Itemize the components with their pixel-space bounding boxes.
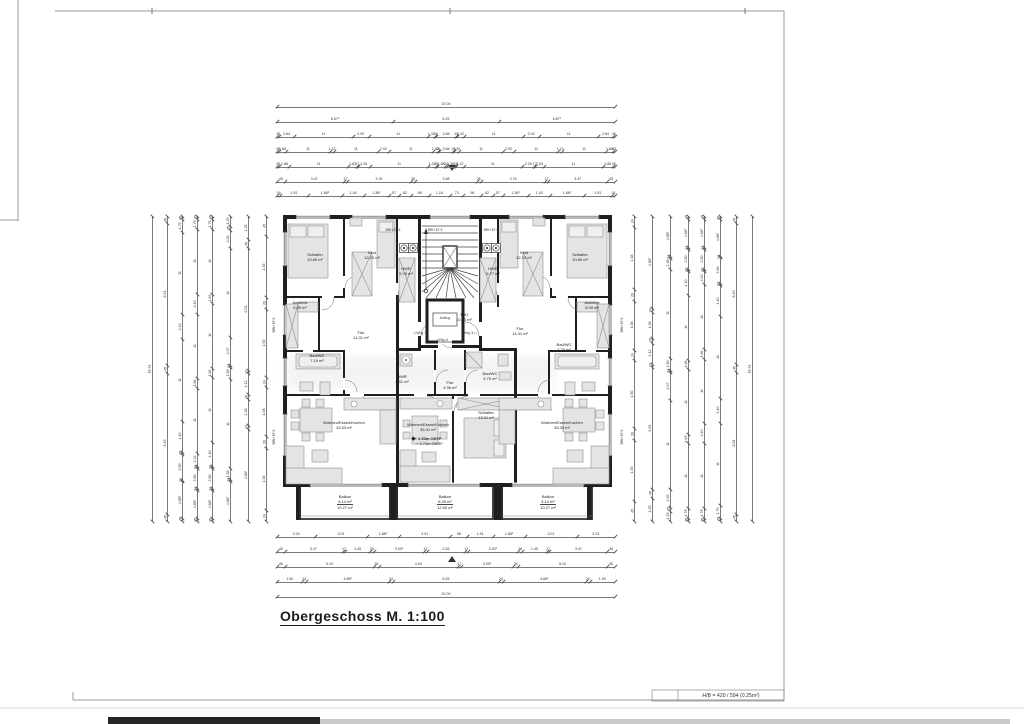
dim-chain-right-8: 241.38261.08241.50261.3545 (628, 216, 635, 521)
dim-chain-left-6: 1.25452.26113.37241.50111.38244.88⁵ (224, 216, 231, 521)
scan-edge-light (320, 719, 1010, 724)
dim-chain-top-5: 451.88111.63172.26111.32261.58241.58261.… (277, 161, 615, 168)
dim-chain-top-6: 453.47173.76263.58263.76173.4745 (277, 176, 615, 183)
dim-chain-left-4: 451.75113.40111.66112.32263.50244.88⁵45 (191, 216, 198, 521)
drawing-sheet: { "sheet": { "title": "Obergeschoss M. 1… (0, 0, 1024, 724)
dim-chain-right-3: 454.88⁵243.50264.10113.40111.7545 (714, 216, 721, 521)
dim-chain-bottom-total: 20.00 (277, 591, 615, 598)
floor-plan-drawing (0, 0, 1024, 724)
dim-chain-top-total: 20.00 (277, 101, 615, 108)
dim-chain-left-7: 1.25456.51171.12261.38244.88⁵ (242, 216, 249, 521)
elevator (427, 300, 463, 344)
dim-chain-bottom-1: 2.243.011.88⁵3.01981.511.88⁵3.012.24 (277, 531, 615, 538)
dim-chain-left-8: 451.35261.50241.08261.3824 (260, 216, 267, 521)
dim-chain-right-total: 18.31 (746, 216, 753, 521)
balconies (300, 487, 592, 519)
dim-chain-right-2: 458.45458.5145 (730, 216, 737, 521)
drawing-title: Obergeschoss M. 1:100 (280, 608, 445, 626)
dim-chain-top-4: 451.88111.13112.92111.32263.58261.32112.… (277, 146, 615, 153)
dim-chain-left-5: 451.75111.63111.66114.10263.50244.88⁵45 (206, 216, 213, 521)
dim-chain-left-3: 451.75113.40114.10263.50244.88⁵45 (176, 216, 183, 521)
dim-chain-left-total: 18.31 (146, 216, 153, 521)
dim-chain-top-3: 452.64112.92111.32263.58261.32112.92112.… (277, 131, 615, 138)
dim-chain-right-4: 454.88⁵243.50262.32111.66113.40111.7545 (698, 216, 705, 521)
dim-chain-right-7: 4.88⁵241.38261.12176.51451.25 (646, 216, 653, 521)
dim-chain-bottom-3: 455.10264.54173.00⁵265.1045 (277, 561, 615, 568)
dim-chain-top-7: 181.511.88⁵1.181.38⁵5762981.18739862571.… (277, 190, 615, 197)
dim-chain-right-6: 4.88⁵241.38111.50243.37112.26451.25 (664, 216, 671, 521)
dim-chain-left-2: 458.51458.4545 (161, 216, 168, 521)
scan-edge-dark (108, 717, 320, 724)
dim-chain-right-5: 454.88⁵243.50264.10111.66111.63111.7545 (682, 216, 689, 521)
dim-chain-bottom-4: 1.50244.88⁵246.25244.88⁵241.50 (277, 576, 615, 583)
dim-chain-bottom-2: 453.47171.45263.00⁵172.26173.00⁵261.4517… (277, 546, 615, 553)
sheet-format-label: H/B = 420 / 594 (0.25m²) (679, 691, 783, 701)
dim-chain-top-2: 6.87⁵6.256.87⁵ (277, 116, 615, 123)
staircase (422, 226, 478, 298)
